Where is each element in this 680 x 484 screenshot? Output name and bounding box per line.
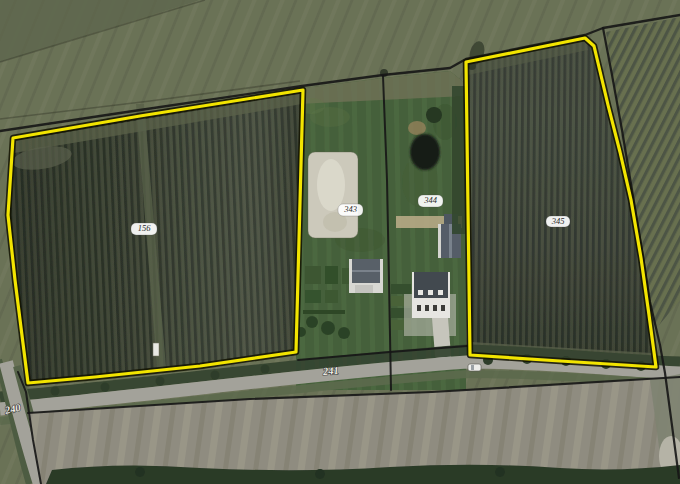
tree <box>321 321 335 335</box>
hedge-bush <box>211 371 220 380</box>
hedge-bush <box>135 467 145 477</box>
dormer <box>418 290 423 295</box>
parcel-label-344[interactable]: 344 <box>418 195 443 207</box>
hedge-bush <box>51 387 60 396</box>
hedge-column <box>452 86 465 234</box>
garden-row <box>391 284 411 294</box>
bare-soil-patch <box>408 121 426 135</box>
car-windshield <box>471 365 474 370</box>
tree <box>306 316 318 328</box>
window <box>441 305 445 311</box>
parcel-label-343[interactable]: 343 <box>338 204 363 216</box>
dormer <box>428 290 433 295</box>
aerial-imagery: 156 343 344 345 241 240 <box>0 0 680 484</box>
parcel-label-156[interactable]: 156 <box>131 223 157 235</box>
label-text: 343 <box>343 204 357 214</box>
tree-cluster <box>426 107 442 123</box>
dormer <box>438 290 443 295</box>
hedge-bush <box>315 469 325 479</box>
label-text: 344 <box>423 195 438 205</box>
hedge-bush <box>156 377 165 386</box>
label-text: 345 <box>551 216 565 226</box>
hedge-bush <box>495 467 505 477</box>
window <box>433 305 437 311</box>
sand-paddock-light <box>317 159 345 211</box>
car-body <box>468 364 481 371</box>
hedge-bush <box>101 383 110 392</box>
parked-car <box>468 364 481 371</box>
garden-plot <box>325 290 338 303</box>
pond <box>410 134 440 170</box>
garden-plot <box>325 266 338 284</box>
parcel-label-345[interactable]: 345 <box>546 216 570 227</box>
garden-plot <box>342 268 350 284</box>
tree <box>338 327 350 339</box>
garden-plot <box>305 290 321 303</box>
garden-plot <box>305 266 321 284</box>
hedge-row <box>303 310 345 314</box>
parcel-label-241[interactable]: 241 <box>322 365 340 377</box>
roof-ridge <box>352 270 380 272</box>
hedge-bush <box>261 365 270 374</box>
house-343-front <box>355 285 373 293</box>
shed-156 <box>153 343 159 356</box>
map-canvas: 156 343 344 345 241 240 <box>0 0 680 484</box>
barn-ridge <box>449 224 452 258</box>
label-text: 156 <box>138 223 152 233</box>
window <box>425 305 429 311</box>
window <box>417 305 421 311</box>
